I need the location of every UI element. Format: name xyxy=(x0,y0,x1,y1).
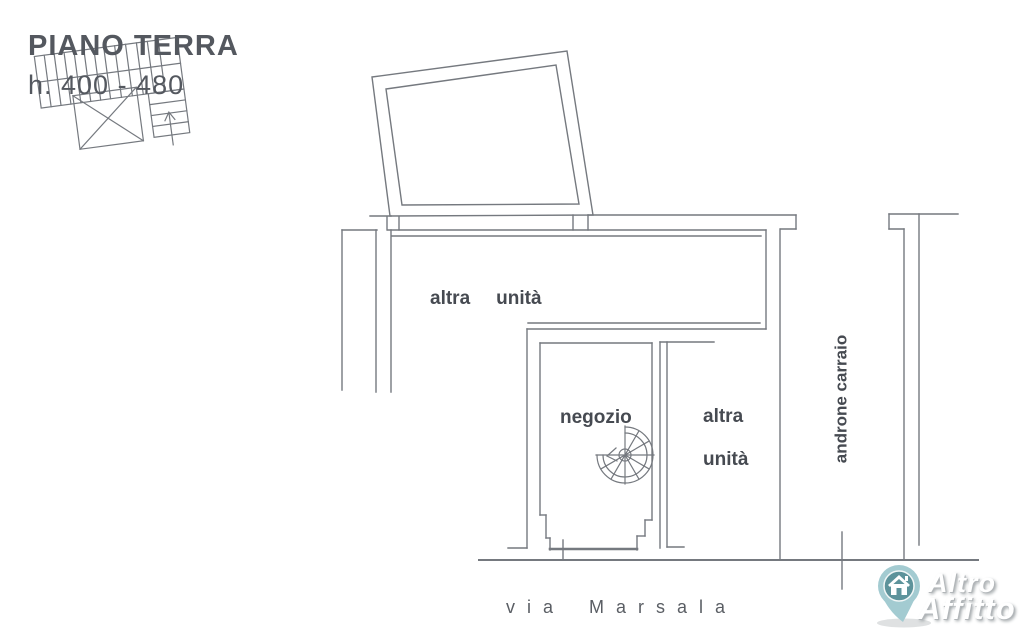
spiral-staircase xyxy=(596,426,654,484)
floor-height: h. 400 - 480 xyxy=(28,70,239,101)
label-unit-right: altra unità xyxy=(703,407,748,469)
label-unit-top-word2: unità xyxy=(496,289,541,308)
floorplan-page: PIANO TERRA h. 400 - 480 altra unità neg… xyxy=(0,0,1024,640)
label-street-word1: via xyxy=(506,597,565,617)
label-street-word2: Marsala xyxy=(589,597,737,617)
label-corridor: androne carraio xyxy=(833,335,850,464)
label-unit-top-word1: altra xyxy=(430,289,470,308)
brand-watermark: Altro Affitto xyxy=(862,556,1024,640)
title-block: PIANO TERRA h. 400 - 480 xyxy=(28,30,239,101)
floor-title: PIANO TERRA xyxy=(28,30,239,63)
label-unit-top: altra unità xyxy=(430,289,542,308)
label-street: viaMarsala xyxy=(506,598,737,616)
label-unit-right-line2: unità xyxy=(703,450,748,469)
building-inner-wall xyxy=(386,65,579,205)
label-unit-right-line1: altra xyxy=(703,407,748,426)
map-pin xyxy=(878,565,920,622)
label-shop: negozio xyxy=(560,408,632,427)
plan-walls xyxy=(342,214,978,589)
brand-name-line2: Affitto xyxy=(918,593,1016,624)
